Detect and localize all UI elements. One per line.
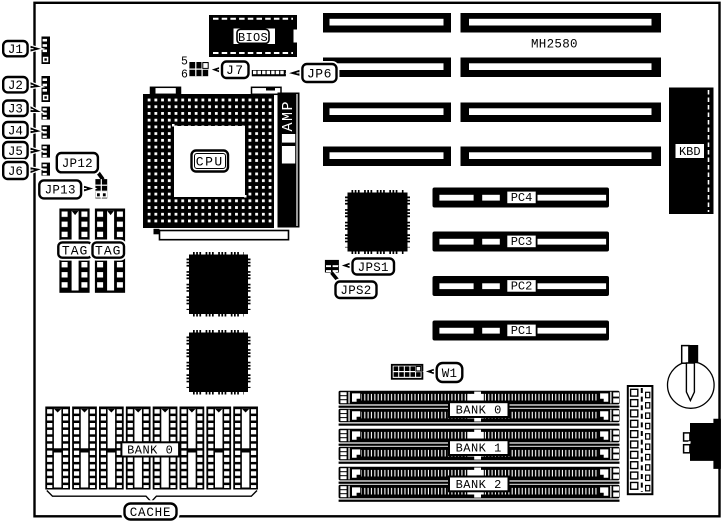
- svg-text:J4: J4: [8, 124, 23, 138]
- svg-text:TAG: TAG: [62, 243, 88, 258]
- svg-text:JPS2: JPS2: [340, 284, 371, 298]
- svg-text:BANK 0: BANK 0: [127, 443, 173, 457]
- svg-text:CACHE: CACHE: [130, 506, 172, 520]
- svg-text:J1: J1: [8, 43, 23, 57]
- svg-text:W1: W1: [442, 367, 458, 381]
- svg-text:PC2: PC2: [511, 280, 533, 294]
- svg-text:PC3: PC3: [511, 235, 533, 249]
- svg-text:J2: J2: [8, 79, 23, 93]
- svg-text:J5: J5: [8, 145, 23, 159]
- svg-text:BANK 2: BANK 2: [456, 478, 502, 492]
- svg-text:PC1: PC1: [511, 324, 533, 338]
- svg-text:JP13: JP13: [45, 184, 76, 198]
- svg-text:JP6: JP6: [307, 66, 332, 81]
- svg-text:J6: J6: [8, 165, 23, 179]
- svg-text:PC4: PC4: [511, 191, 533, 205]
- svg-text:BANK 0: BANK 0: [456, 404, 502, 418]
- svg-text:BIOS: BIOS: [238, 31, 268, 45]
- svg-text:MH2580: MH2580: [531, 38, 578, 52]
- svg-text:TAG: TAG: [95, 243, 121, 258]
- svg-text:J3: J3: [8, 103, 23, 117]
- svg-text:JPS1: JPS1: [358, 261, 389, 275]
- svg-text:AMP: AMP: [280, 100, 297, 132]
- svg-text:BANK 1: BANK 1: [456, 442, 502, 456]
- svg-text:5: 5: [181, 56, 188, 69]
- svg-text:JP12: JP12: [62, 157, 93, 171]
- svg-text:J7: J7: [226, 63, 245, 78]
- svg-text:KBD: KBD: [679, 145, 701, 159]
- svg-text:CPU: CPU: [196, 154, 224, 169]
- svg-text:6: 6: [181, 69, 188, 82]
